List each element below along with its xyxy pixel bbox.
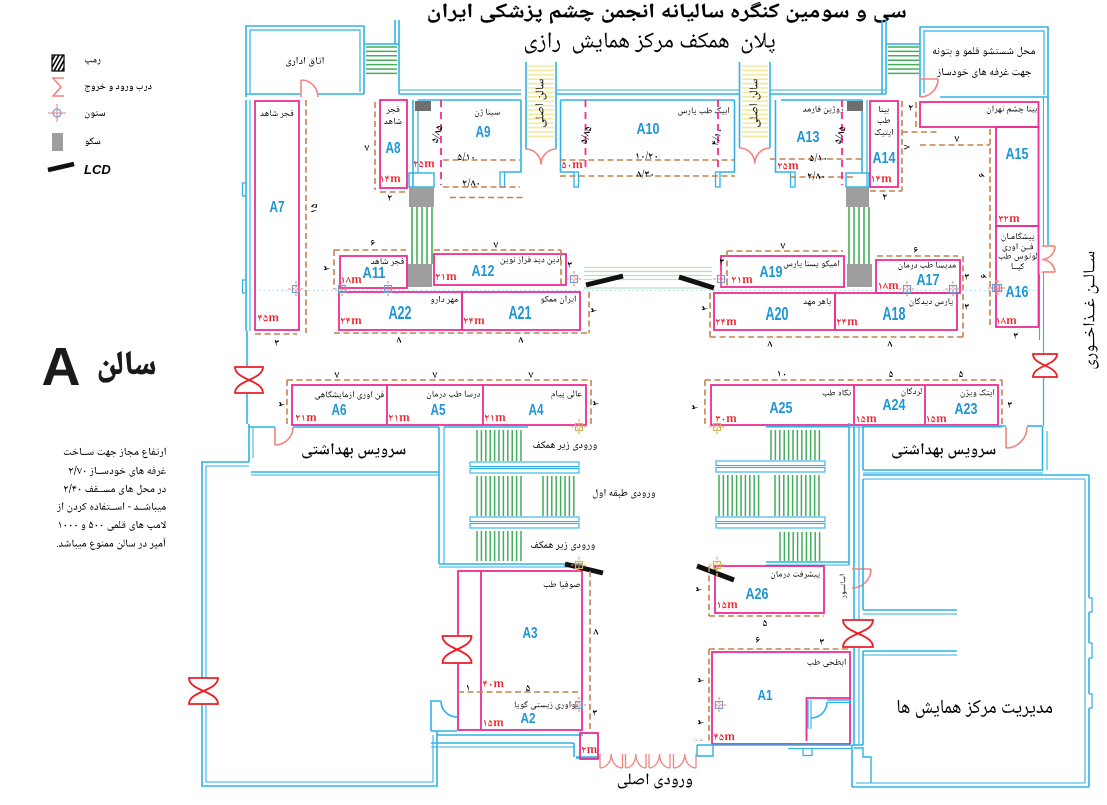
svg-text:A22: A22: [389, 303, 412, 323]
svg-text:A: A: [42, 337, 81, 397]
svg-text:A25: A25: [770, 400, 793, 417]
svg-text:A1: A1: [758, 687, 773, 704]
svg-text:A6: A6: [332, 402, 347, 419]
svg-text:A13: A13: [797, 129, 820, 146]
svg-text:A4: A4: [529, 402, 544, 419]
svg-text:A10: A10: [637, 121, 660, 138]
svg-text:A19: A19: [760, 264, 783, 281]
svg-text:A20: A20: [766, 304, 789, 324]
svg-text:LCD: LCD: [84, 162, 111, 177]
svg-text:A2: A2: [521, 710, 536, 727]
svg-text:A15: A15: [1006, 146, 1029, 163]
svg-text:A5: A5: [431, 402, 446, 419]
svg-text:A24: A24: [883, 397, 906, 414]
svg-text:A14: A14: [873, 150, 896, 167]
svg-text:A9: A9: [476, 124, 491, 141]
svg-text:A11: A11: [363, 265, 386, 282]
svg-text:A26: A26: [746, 586, 769, 603]
svg-text:A16: A16: [1006, 284, 1029, 301]
svg-text:A21: A21: [509, 303, 532, 323]
svg-text:A3: A3: [523, 625, 538, 642]
svg-text:A23: A23: [955, 401, 978, 418]
svg-text:A12: A12: [472, 263, 495, 280]
svg-text:A7: A7: [270, 199, 285, 216]
svg-text:A8: A8: [386, 140, 401, 157]
svg-text:A18: A18: [883, 304, 906, 324]
svg-text:A17: A17: [917, 272, 940, 289]
